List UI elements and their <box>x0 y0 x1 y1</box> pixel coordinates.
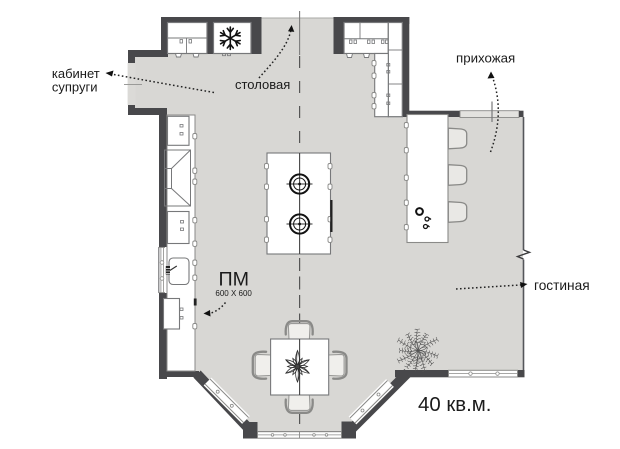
svg-text:гостиная: гостиная <box>534 278 590 293</box>
svg-text:40 кв.м.: 40 кв.м. <box>418 394 491 416</box>
svg-text:прихожая: прихожая <box>456 51 515 66</box>
svg-text:столовая: столовая <box>235 77 290 92</box>
svg-text:ПМ: ПМ <box>219 269 250 291</box>
svg-text:600 X 600: 600 X 600 <box>215 289 252 298</box>
svg-text:супруги: супруги <box>52 79 98 94</box>
